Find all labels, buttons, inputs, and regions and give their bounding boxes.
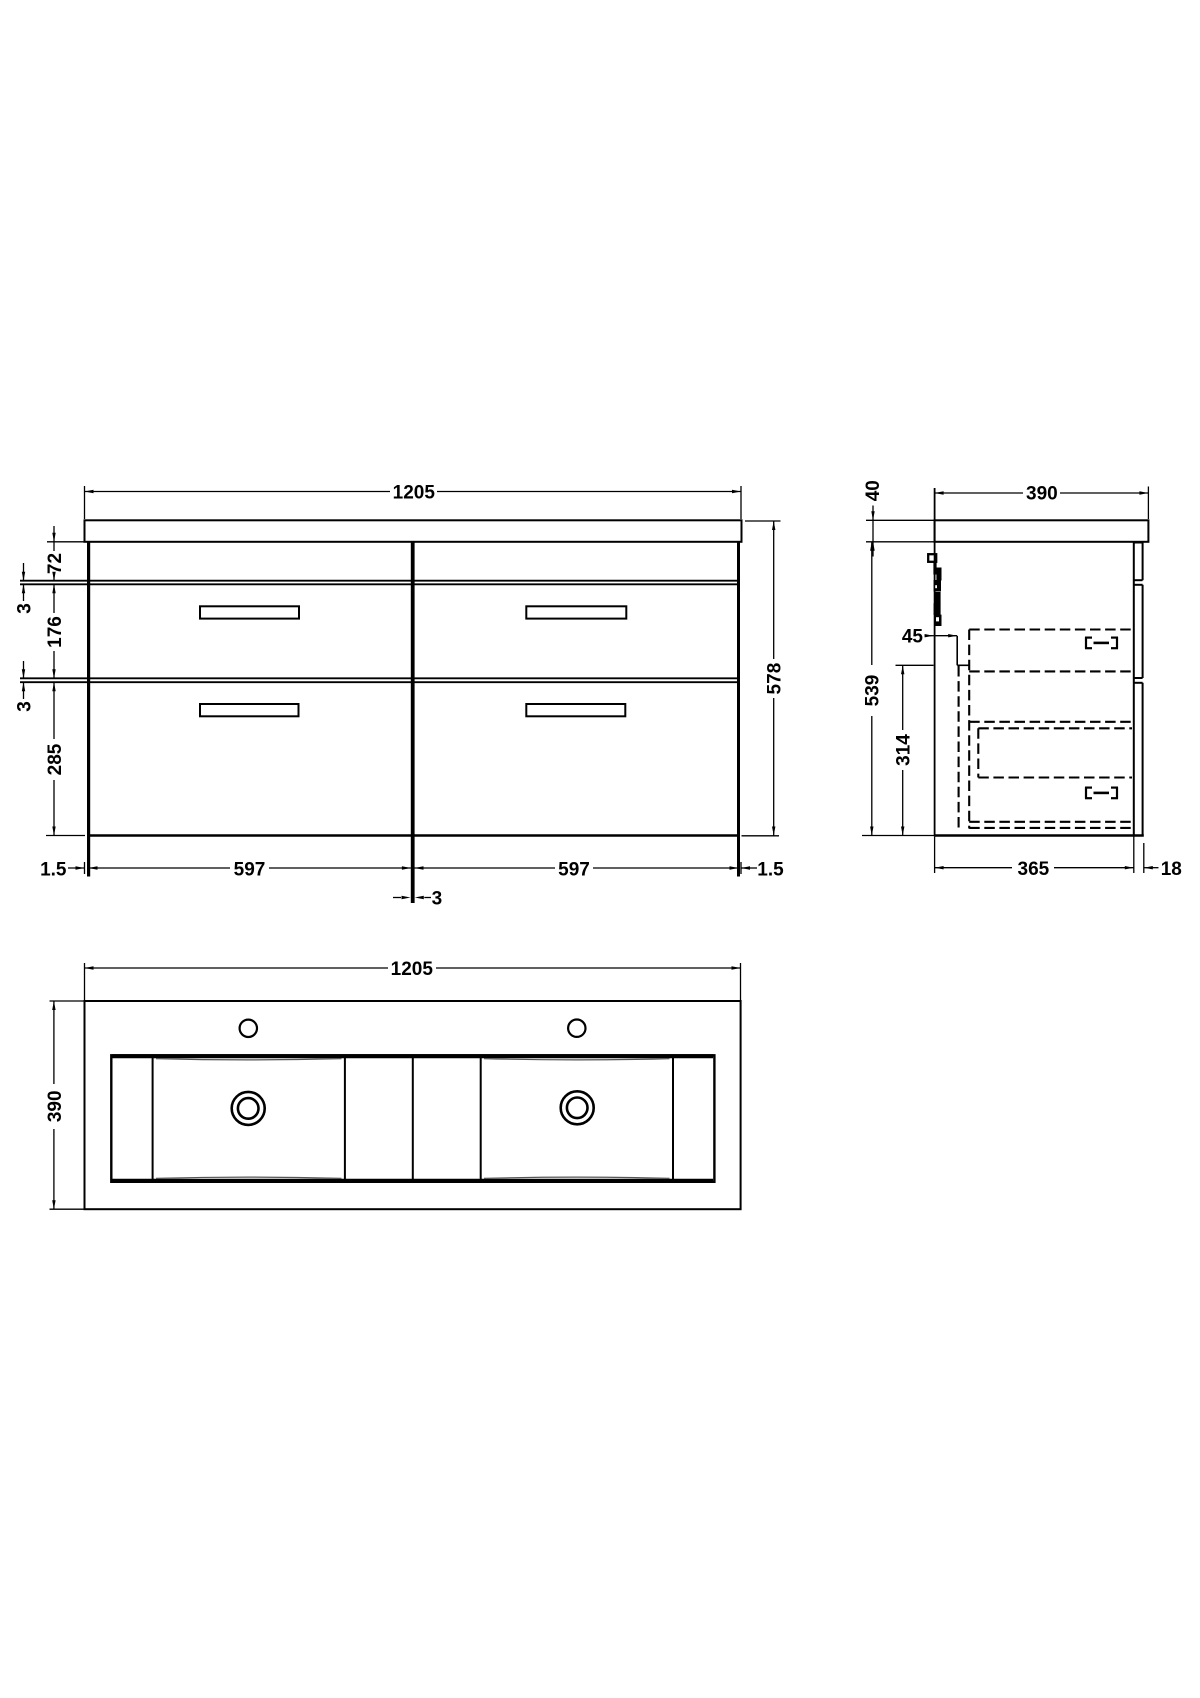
svg-text:3: 3 <box>14 603 35 614</box>
svg-text:1.5: 1.5 <box>40 859 67 880</box>
svg-text:72: 72 <box>45 553 66 574</box>
svg-text:1205: 1205 <box>393 483 436 504</box>
svg-text:390: 390 <box>1026 484 1058 505</box>
svg-text:3: 3 <box>432 888 443 909</box>
svg-text:597: 597 <box>234 859 266 880</box>
svg-text:40: 40 <box>863 480 884 501</box>
svg-text:45: 45 <box>902 627 924 648</box>
svg-text:314: 314 <box>894 734 915 766</box>
svg-text:539: 539 <box>863 675 884 707</box>
svg-text:597: 597 <box>558 859 590 880</box>
svg-text:3: 3 <box>14 701 35 712</box>
svg-text:285: 285 <box>45 743 66 775</box>
svg-text:176: 176 <box>45 616 66 648</box>
svg-text:1205: 1205 <box>391 959 434 980</box>
svg-text:365: 365 <box>1018 859 1050 880</box>
svg-text:1.5: 1.5 <box>757 859 784 880</box>
svg-text:578: 578 <box>765 663 786 695</box>
svg-text:390: 390 <box>45 1090 66 1122</box>
svg-text:18: 18 <box>1161 859 1182 880</box>
